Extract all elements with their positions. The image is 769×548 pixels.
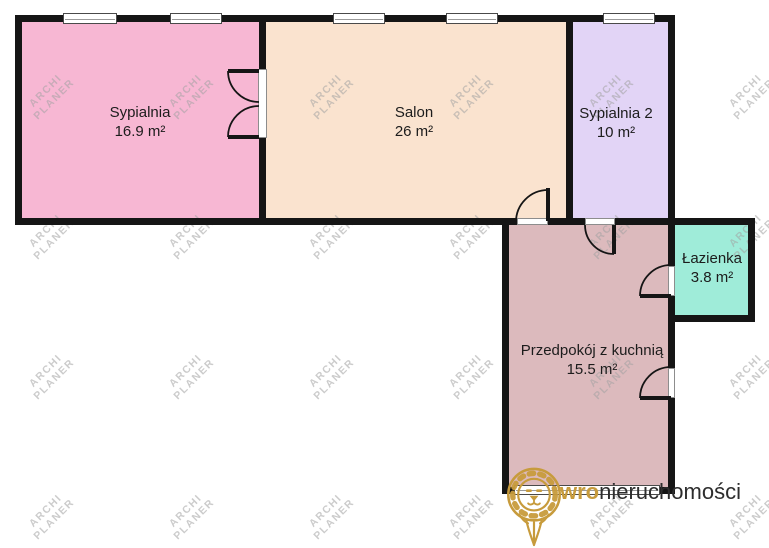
room-name: Sypialnia 2 — [579, 104, 652, 123]
wall-lazienka-bottom — [668, 315, 755, 322]
wall-lazienka-right — [748, 218, 755, 322]
label-przedpokoj: Przedpokój z kuchnią 15.5 m² — [521, 341, 664, 379]
lion-icon — [503, 461, 565, 548]
wall-right — [668, 15, 675, 494]
room-name: Salon — [395, 103, 433, 122]
room-area: 3.8 m² — [682, 268, 742, 287]
watermark: ARCHIPLANER — [163, 488, 217, 542]
sypialnia2-door-opening — [585, 218, 615, 225]
logo-text: wronieruchomości — [560, 480, 741, 504]
salon-door-opening — [517, 218, 548, 225]
room-area: 26 m² — [395, 122, 433, 141]
label-sypialnia2: Sypialnia 2 10 m² — [579, 104, 652, 142]
watermark: ARCHIPLANER — [163, 348, 217, 402]
watermark: ARCHIPLANER — [303, 488, 357, 542]
watermark: ARCHIPLANER — [443, 488, 497, 542]
logo-main-text: nieruchomości — [599, 479, 741, 504]
room-area: 15.5 m² — [521, 360, 664, 379]
watermark: ARCHIPLANER — [303, 348, 357, 402]
window — [63, 13, 117, 24]
watermark: ARCHIPLANER — [723, 348, 769, 402]
wall-left — [15, 15, 22, 225]
logo-accent-text: wro — [560, 479, 599, 504]
room-name: Łazienka — [682, 249, 742, 268]
room-area: 10 m² — [579, 123, 652, 142]
window — [446, 13, 498, 24]
label-sypialnia: Sypialnia 16.9 m² — [110, 103, 171, 141]
watermark: ARCHIPLANER — [443, 348, 497, 402]
window — [170, 13, 222, 24]
floor-plan: ARCHIPLANERARCHIPLANERARCHIPLANERARCHIPL… — [0, 0, 769, 548]
room-name: Przedpokój z kuchnią — [521, 341, 664, 360]
wall-salon-sypialnia2 — [566, 15, 573, 225]
watermark: ARCHIPLANER — [723, 68, 769, 122]
double-door-opening — [258, 69, 267, 138]
lazienka-door-opening — [668, 266, 675, 296]
wall-przedpokoj-left — [502, 218, 509, 494]
watermark: ARCHIPLANER — [23, 348, 77, 402]
entry-door-opening — [668, 368, 675, 398]
wall-middle — [15, 218, 755, 225]
label-salon: Salon 26 m² — [395, 103, 433, 141]
window — [333, 13, 385, 24]
room-name: Sypialnia — [110, 103, 171, 122]
window — [603, 13, 655, 24]
watermark: ARCHIPLANER — [23, 488, 77, 542]
room-area: 16.9 m² — [110, 122, 171, 141]
label-lazienka: Łazienka 3.8 m² — [682, 249, 742, 287]
